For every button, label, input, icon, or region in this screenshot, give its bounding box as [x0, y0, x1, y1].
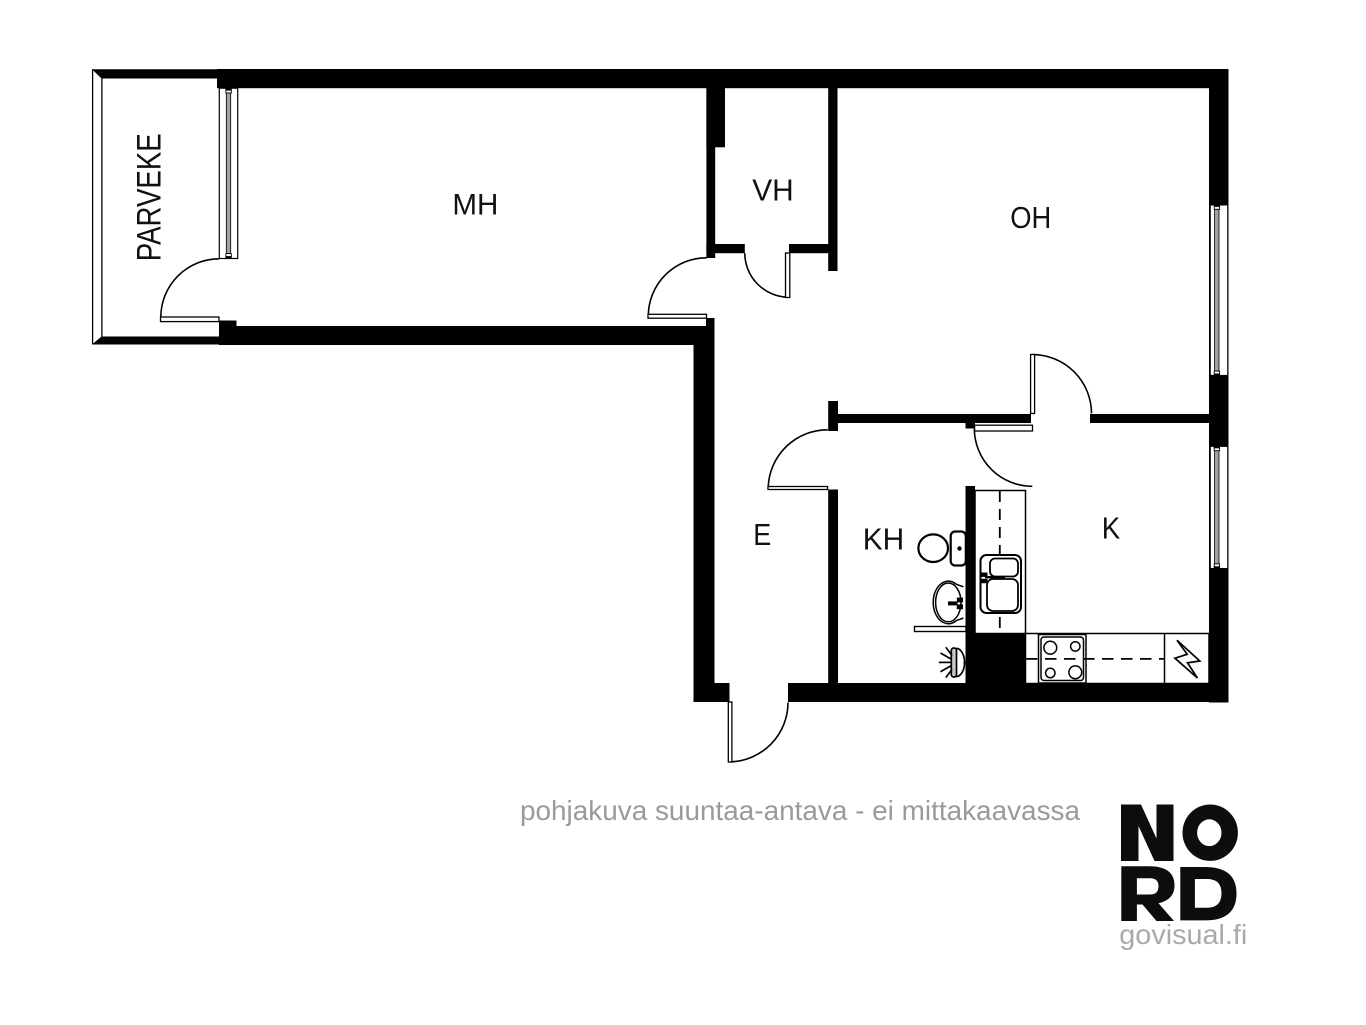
svg-text:VH: VH	[752, 173, 794, 207]
svg-text:PARVEKE: PARVEKE	[131, 133, 169, 261]
svg-text:OH: OH	[1010, 201, 1051, 235]
svg-text:KH: KH	[863, 522, 905, 556]
svg-text:govisual.fi: govisual.fi	[1119, 919, 1247, 950]
svg-text:MH: MH	[452, 189, 498, 222]
svg-text:pohjakuva suuntaa-antava - ei: pohjakuva suuntaa-antava - ei mittakaava…	[520, 795, 1080, 826]
svg-text:K: K	[1102, 510, 1121, 545]
svg-text:E: E	[753, 517, 771, 552]
